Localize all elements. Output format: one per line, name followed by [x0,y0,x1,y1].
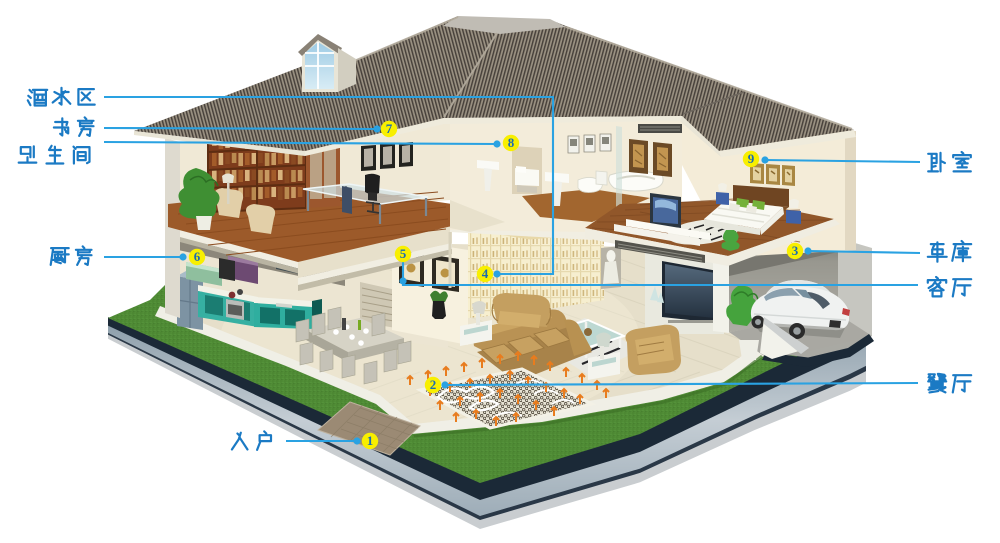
svg-text:2: 2 [430,377,437,392]
svg-text:9: 9 [748,151,755,166]
svg-text:8: 8 [508,135,515,150]
svg-text:3: 3 [792,243,799,258]
svg-text:4: 4 [482,266,489,281]
svg-text:5: 5 [400,246,407,261]
svg-text:6: 6 [194,249,201,264]
svg-text:7: 7 [386,121,393,136]
svg-text:1: 1 [367,433,374,448]
